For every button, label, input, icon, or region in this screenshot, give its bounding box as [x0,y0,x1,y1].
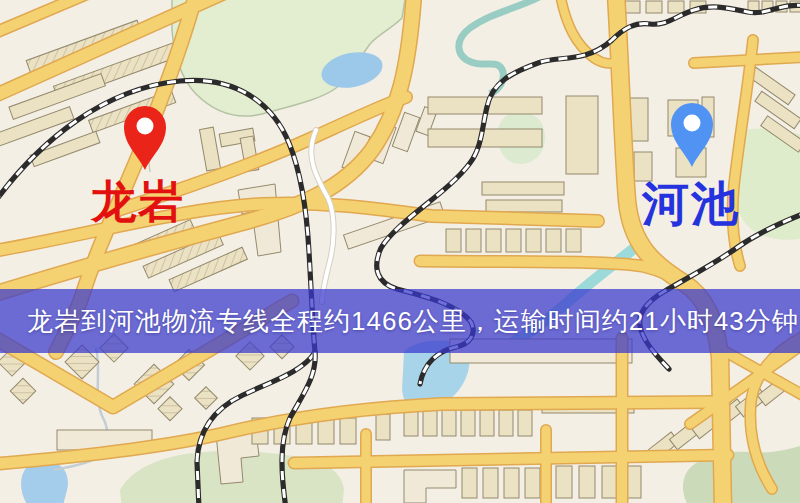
destination-pin-hole [684,115,701,132]
route-info-text: 龙岩到河池物流专线全程约1466公里，运输时间约21小时43分钟. [0,304,800,339]
map-canvas [0,0,800,503]
route-info-banner: 龙岩到河池物流专线全程约1466公里，运输时间约21小时43分钟. [0,289,800,353]
origin-city-label: 龙岩 [91,180,185,225]
destination-city-label: 河池 [642,181,740,228]
map-screenshot: 龙岩 河池 龙岩到河池物流专线全程约1466公里，运输时间约21小时43分钟. [0,0,800,503]
origin-pin-hole [137,118,154,135]
